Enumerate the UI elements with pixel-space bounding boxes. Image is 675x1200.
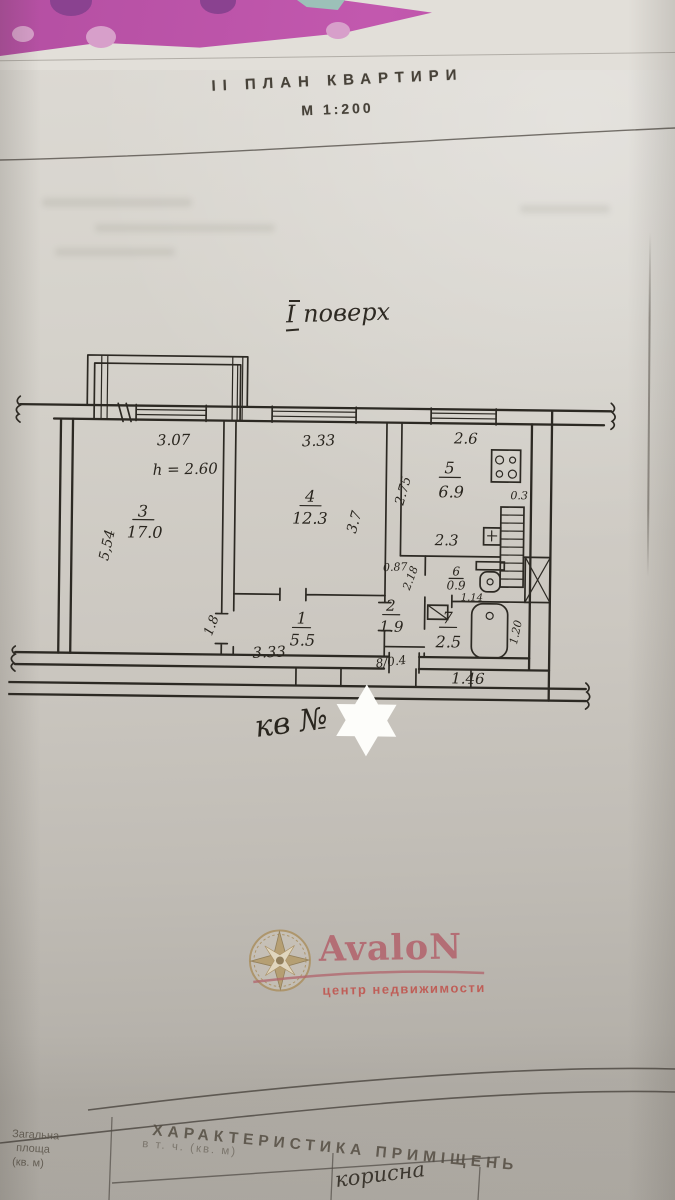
dim-kitchen-length: 2.75 — [392, 475, 415, 508]
col-total-line2: площа — [16, 1142, 51, 1156]
wall-break-left — [16, 396, 20, 422]
wall-left — [58, 419, 73, 653]
polka-dot — [326, 22, 350, 39]
footer-rule-mid — [0, 1091, 675, 1143]
bath-number: 7 — [442, 608, 453, 627]
dim-ceiling-height: h = 2.60 — [152, 459, 218, 478]
showthrough-mark — [55, 248, 175, 256]
table-vline-2 — [331, 1153, 333, 1200]
dim-kitchen-bottom: 2.3 — [434, 531, 459, 549]
characteristics-table: ХАРАКТЕРИСТИКА ПРИМІЩЕНЬ Загальна площа … — [0, 1055, 675, 1200]
col-total-line1: Загальна — [12, 1128, 60, 1142]
polka-dot — [12, 26, 34, 42]
watermark-tagline: центр недвижимости — [322, 980, 486, 998]
vent-shaft — [500, 507, 524, 587]
kitchen-area: 6.9 — [438, 482, 464, 501]
dim-room4-length: 3.7 — [344, 509, 365, 535]
stove-icon — [491, 450, 520, 482]
bathtub-icon — [471, 604, 508, 658]
hall-number: 1 — [296, 609, 306, 628]
dim-room3-width: 3.07 — [157, 431, 191, 450]
privacy-star-overlay — [336, 684, 397, 757]
dim-passage: 0.87 — [383, 560, 408, 574]
floor-plan-drawing: 3.07 h = 2.60 5,54 3 17.0 3.33 4 12.3 3.… — [7, 326, 667, 769]
header-rule — [0, 118, 675, 173]
wc-number: 6 — [452, 564, 460, 578]
showthrough-mark — [42, 198, 192, 207]
wall-right — [529, 410, 553, 700]
wall-break-right — [611, 403, 615, 429]
room3-number: 3 — [138, 502, 148, 521]
showthrough-mark — [520, 205, 610, 213]
photographed-floor-plan-document: ІІ ПЛАН КВАРТИРИ М 1:200 І поверх — [0, 0, 675, 1200]
wall-bath-left — [424, 601, 425, 657]
wc-area: 0.9 — [446, 578, 466, 592]
dim-bath-length: 1.20 — [507, 619, 525, 646]
wall-wc-left — [425, 556, 426, 601]
bath-area: 2.5 — [435, 632, 462, 651]
vent-shaft-2 — [525, 557, 551, 602]
room4-area: 12.3 — [292, 508, 328, 527]
dim-hall-height: 1.8 — [201, 613, 222, 638]
dim-room3-length: 5,54 — [96, 528, 118, 562]
col-total-line3: (кв. м) — [12, 1156, 44, 1170]
floor-plan-svg: 3.07 h = 2.60 5,54 3 17.0 3.33 4 12.3 3.… — [7, 326, 667, 769]
room4-number: 4 — [304, 487, 315, 506]
dim-kitchen-width: 2.6 — [453, 429, 479, 447]
wall-break-bottom-left — [11, 646, 15, 671]
balcony — [87, 355, 248, 421]
wall-break-bottom-right — [586, 683, 590, 709]
table-vline-3 — [478, 1167, 480, 1200]
meter-icon — [484, 528, 501, 545]
agency-watermark: AvaloN центр недвижимости — [242, 918, 493, 1010]
apartment-number-label: кв № — [253, 701, 330, 745]
col-useful-handwritten: корисна — [334, 1157, 427, 1192]
floor-label-overline — [289, 300, 300, 302]
wall-room4-hall — [234, 588, 385, 602]
table-hline — [112, 1157, 500, 1183]
hall-area: 5.5 — [290, 630, 316, 649]
polka-dot — [86, 26, 116, 48]
room3-area: 17.0 — [127, 522, 163, 541]
kitchen-number: 5 — [444, 458, 454, 477]
closet-label: 8/0.4 — [375, 653, 407, 671]
corridor-area: 1.9 — [379, 618, 404, 636]
watermark-brand: AvaloN — [318, 926, 462, 969]
showthrough-mark — [95, 224, 275, 232]
dim-wc-width: 1.14 — [461, 593, 483, 604]
dim-hall-width: 3.33 — [252, 643, 286, 662]
table-vline-1 — [109, 1117, 112, 1200]
corridor-number: 2 — [385, 597, 396, 615]
dim-vent: 0.3 — [510, 489, 528, 502]
dim-room4-width: 3.33 — [301, 431, 335, 450]
wall-top-outer — [20, 404, 611, 411]
dim-bath-width: 1.46 — [451, 669, 485, 687]
floor-label: І поверх — [286, 298, 391, 329]
wall-kitchen-bottom — [400, 556, 530, 558]
